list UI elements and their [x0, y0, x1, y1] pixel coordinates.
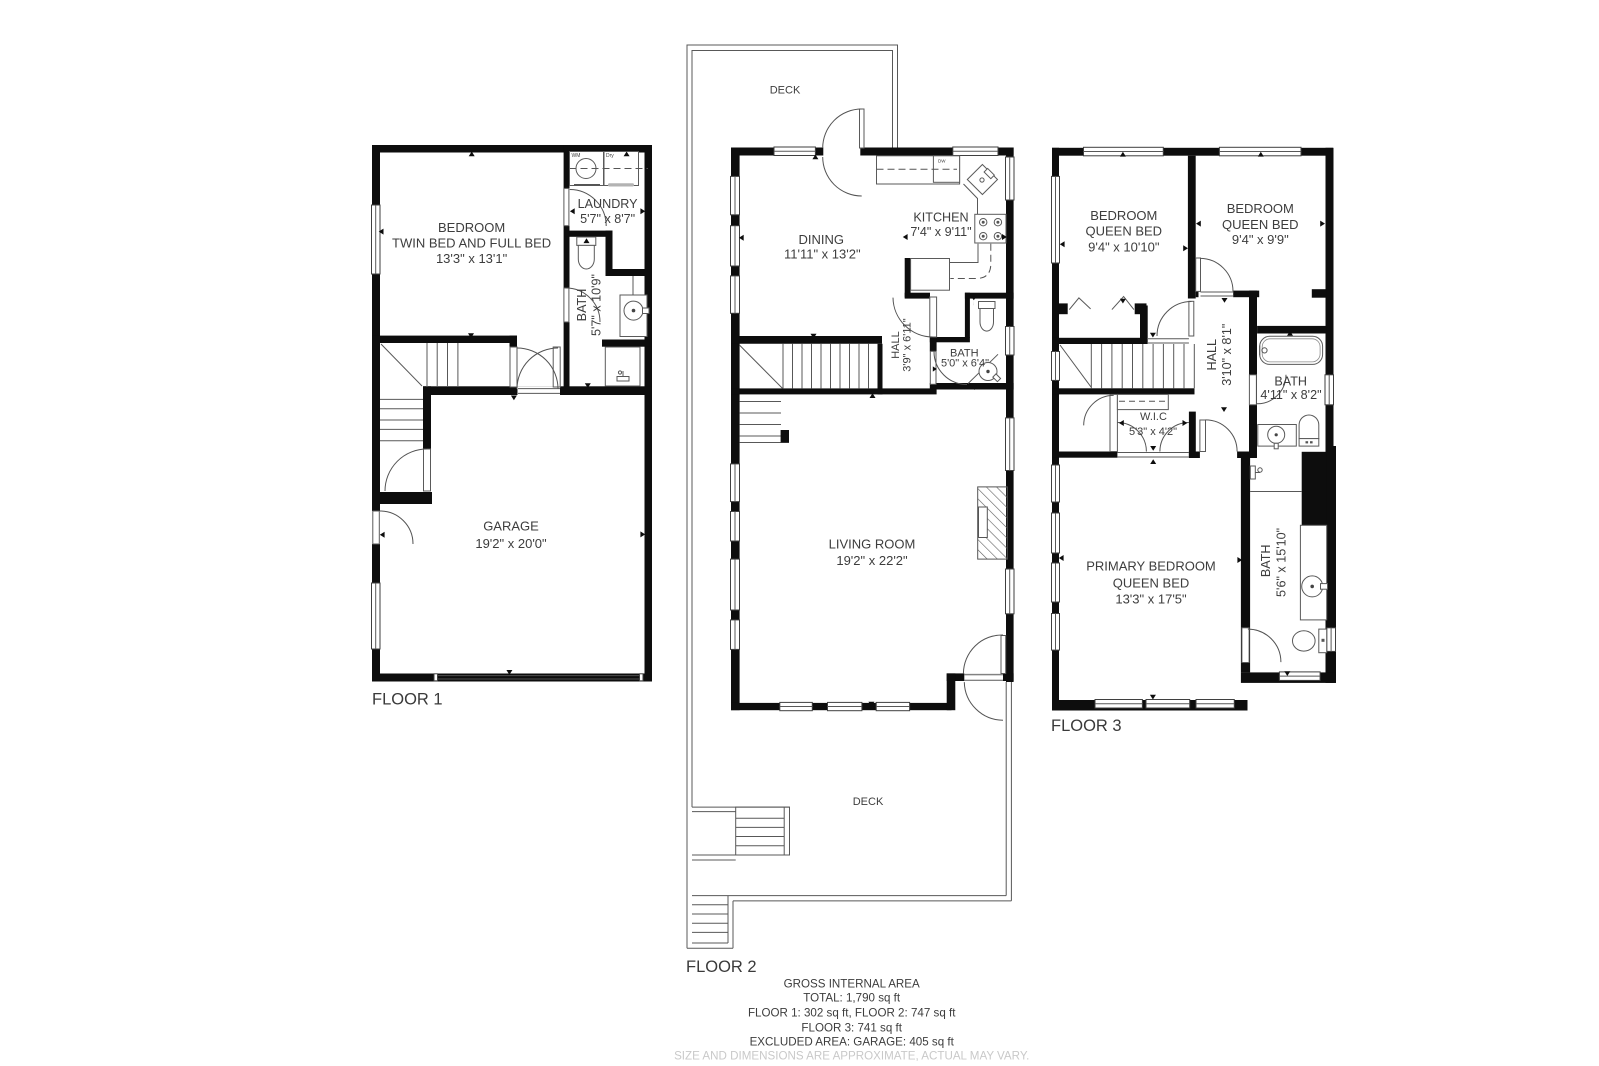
svg-text:SIZE AND DIMENSIONS ARE APPROX: SIZE AND DIMENSIONS ARE APPROXIMATE, ACT…: [674, 1049, 1029, 1062]
svg-text:DW: DW: [938, 159, 946, 164]
svg-text:DECK: DECK: [770, 85, 801, 97]
svg-text:7'4" x 9'11": 7'4" x 9'11": [910, 225, 971, 239]
svg-text:QUEEN BED: QUEEN BED: [1222, 217, 1299, 232]
svg-text:BATH: BATH: [1259, 544, 1273, 577]
svg-text:3'10" x 8'1": 3'10" x 8'1": [1220, 324, 1234, 386]
svg-text:HALL: HALL: [890, 331, 902, 359]
svg-text:TWIN BED AND FULL BED: TWIN BED AND FULL BED: [392, 236, 551, 251]
svg-text:KITCHEN: KITCHEN: [913, 211, 968, 225]
svg-text:3'9" x 6'11": 3'9" x 6'11": [902, 318, 914, 371]
svg-text:5'7" x 8'7": 5'7" x 8'7": [580, 212, 635, 226]
svg-text:Dry: Dry: [606, 153, 614, 159]
svg-text:EXCLUDED AREA: GARAGE: 405 sq: EXCLUDED AREA: GARAGE: 405 sq ft: [750, 1035, 955, 1048]
svg-text:GARAGE: GARAGE: [483, 519, 539, 534]
svg-text:LIVING ROOM: LIVING ROOM: [829, 537, 916, 552]
svg-text:13'3" x 17'5": 13'3" x 17'5": [1115, 592, 1187, 607]
svg-text:BATH: BATH: [575, 289, 589, 322]
svg-text:BATH: BATH: [1274, 375, 1307, 389]
svg-text:5'6" x 15'10": 5'6" x 15'10": [1275, 528, 1289, 597]
svg-text:TOTAL: 1,790 sq ft: TOTAL: 1,790 sq ft: [803, 992, 901, 1005]
svg-text:4'11" x 8'2": 4'11" x 8'2": [1260, 388, 1321, 402]
svg-text:9'4" x 10'10": 9'4" x 10'10": [1088, 239, 1160, 254]
svg-text:WM: WM: [572, 153, 581, 159]
svg-text:DECK: DECK: [853, 796, 884, 808]
svg-text:11'11" x 13'2": 11'11" x 13'2": [784, 247, 861, 262]
svg-text:5'7" x 10'9": 5'7" x 10'9": [590, 274, 604, 336]
svg-text:FLOOR 1: 302 sq ft, FLOOR 2: 7: FLOOR 1: 302 sq ft, FLOOR 2: 747 sq ft: [748, 1007, 956, 1020]
svg-text:QUEEN BED: QUEEN BED: [1113, 576, 1190, 591]
svg-text:19'2" x 20'0": 19'2" x 20'0": [475, 536, 547, 551]
svg-text:FLOOR 1: FLOOR 1: [372, 691, 443, 709]
svg-text:5'3" x 4'2": 5'3" x 4'2": [1129, 426, 1177, 438]
svg-text:BEDROOM: BEDROOM: [1090, 208, 1157, 223]
svg-text:QUEEN BED: QUEEN BED: [1086, 224, 1163, 239]
svg-text:LAUNDRY: LAUNDRY: [578, 197, 639, 211]
svg-text:9'4" x 9'9": 9'4" x 9'9": [1232, 232, 1289, 247]
svg-text:GROSS INTERNAL AREA: GROSS INTERNAL AREA: [784, 978, 920, 991]
svg-text:FLOOR 3: FLOOR 3: [1051, 717, 1122, 735]
svg-text:FLOOR 3: 741 sq ft: FLOOR 3: 741 sq ft: [801, 1021, 902, 1034]
svg-text:BEDROOM: BEDROOM: [438, 220, 505, 235]
svg-text:W.I.C: W.I.C: [1140, 411, 1167, 423]
svg-text:19'2" x 22'2": 19'2" x 22'2": [836, 553, 908, 568]
svg-text:13'3" x 13'1": 13'3" x 13'1": [436, 251, 508, 266]
svg-text:DINING: DINING: [799, 232, 845, 247]
svg-text:HALL: HALL: [1205, 339, 1219, 371]
svg-text:FLOOR 2: FLOOR 2: [686, 958, 757, 976]
svg-text:PRIMARY BEDROOM: PRIMARY BEDROOM: [1086, 559, 1216, 574]
svg-text:BEDROOM: BEDROOM: [1227, 201, 1294, 216]
svg-text:5'0" x 6'4": 5'0" x 6'4": [941, 357, 989, 369]
